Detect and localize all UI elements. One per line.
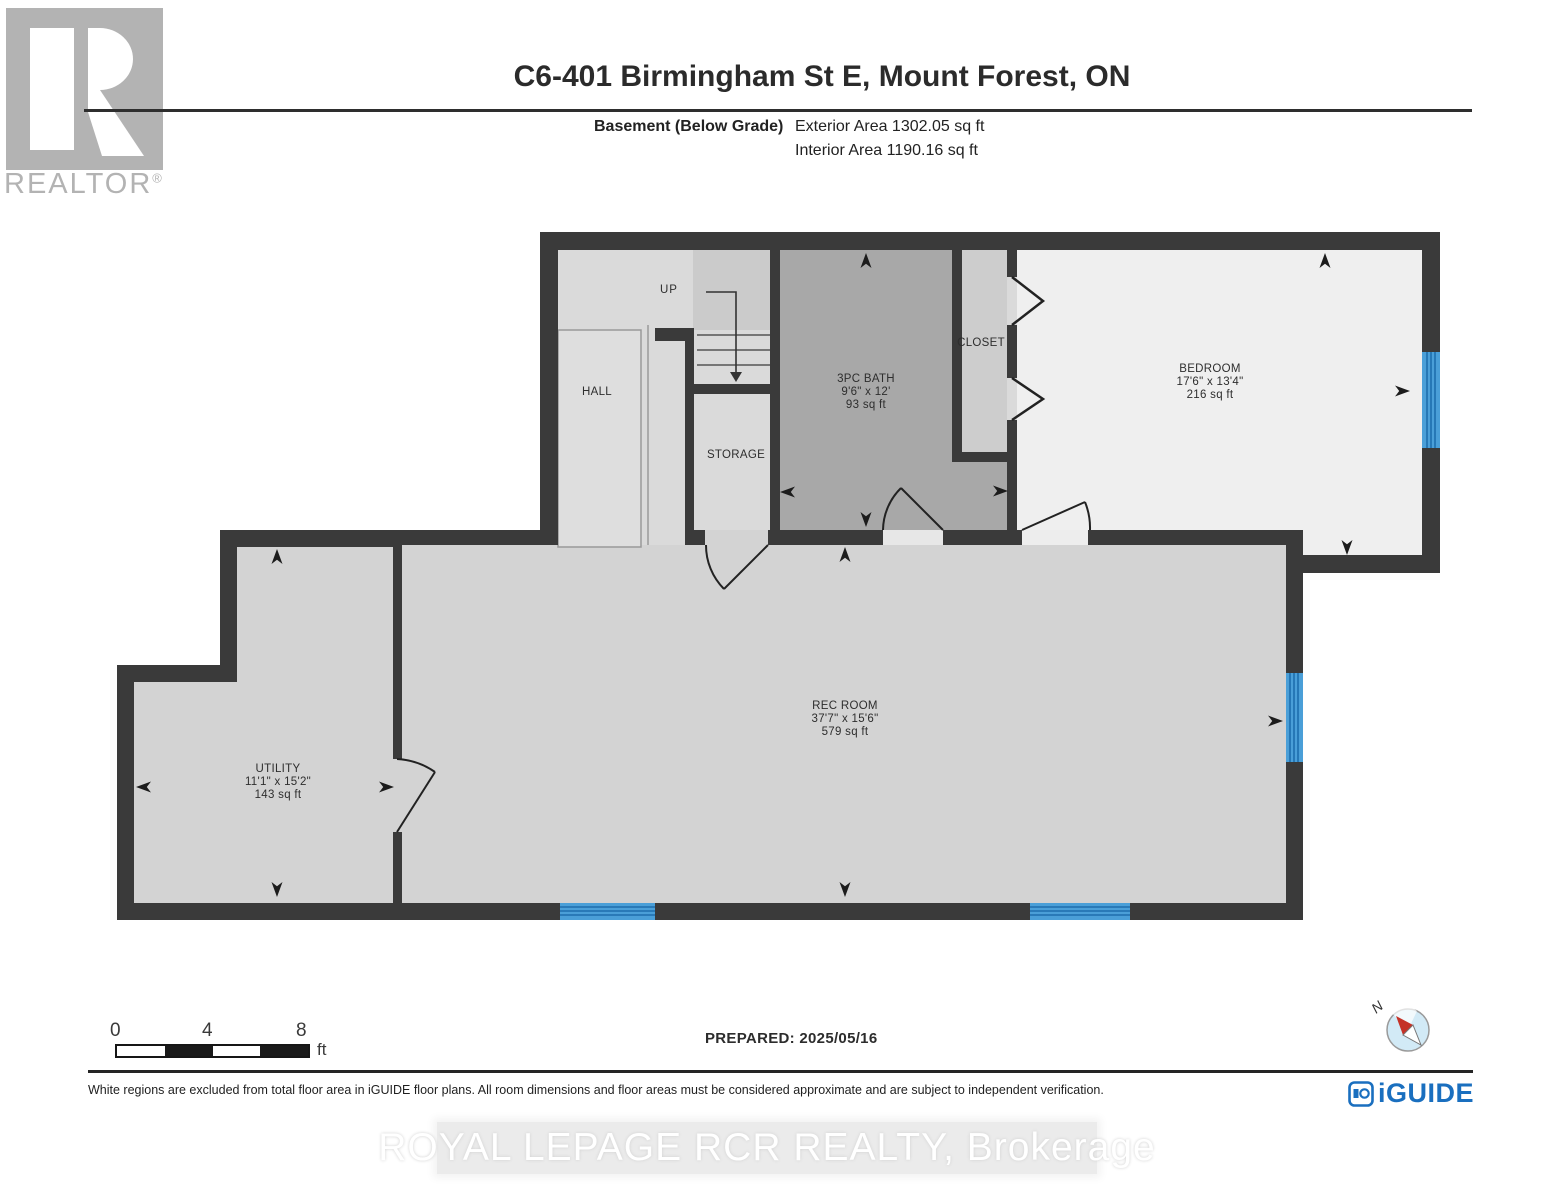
scale-segment bbox=[165, 1046, 213, 1056]
hall-floor bbox=[558, 330, 641, 547]
rec-room-bottom-window-left bbox=[560, 903, 655, 920]
scale-mid: 4 bbox=[202, 1020, 213, 1042]
scale-segment bbox=[117, 1046, 165, 1056]
iguide-logo: iGUIDE bbox=[1348, 1078, 1474, 1109]
room-label-closet: CLOSET bbox=[957, 337, 1005, 350]
scale-start: 0 bbox=[110, 1020, 121, 1042]
brokerage-watermark: ROYAL LEPAGE RCR REALTY, Brokerage bbox=[378, 1126, 1155, 1170]
closet-floor bbox=[962, 250, 1007, 452]
scale-segment bbox=[213, 1046, 261, 1056]
room-label-bath: 3PC BATH9'6" x 12'93 sq ft bbox=[837, 373, 895, 412]
scale-unit: ft bbox=[317, 1040, 326, 1060]
iguide-wordmark: iGUIDE bbox=[1378, 1078, 1474, 1109]
scale-segment bbox=[260, 1046, 308, 1056]
rec-room-side-window bbox=[1286, 673, 1303, 762]
iguide-icon bbox=[1348, 1081, 1374, 1107]
prepared-date: PREPARED: 2025/05/16 bbox=[705, 1030, 877, 1047]
compass-icon bbox=[1387, 1006, 1429, 1051]
room-label-hall: HALL bbox=[582, 386, 612, 399]
room-label-bedroom: BEDROOM17'6" x 13'4"216 sq ft bbox=[1177, 363, 1244, 402]
footer-divider bbox=[88, 1070, 1473, 1073]
floor-plan bbox=[0, 0, 1553, 1200]
scale-bar bbox=[115, 1044, 310, 1058]
scale-end: 8 bbox=[296, 1020, 307, 1042]
floor-plan-page: REALTOR® C6-401 Birmingham St E, Mount F… bbox=[0, 0, 1553, 1200]
stairs-up-label: UP bbox=[660, 284, 678, 296]
rec-utility-floor bbox=[134, 545, 1286, 903]
room-label-utility: UTILITY11'1" x 15'2"143 sq ft bbox=[245, 763, 311, 802]
bedroom-floor bbox=[1017, 250, 1422, 555]
room-label-storage: STORAGE bbox=[707, 449, 765, 462]
bedroom-window bbox=[1422, 352, 1440, 448]
footer-disclaimer: White regions are excluded from total fl… bbox=[88, 1083, 1104, 1097]
room-label-rec-room: REC ROOM37'7" x 15'6"579 sq ft bbox=[812, 700, 879, 739]
rec-room-bottom-window-right bbox=[1030, 903, 1130, 920]
